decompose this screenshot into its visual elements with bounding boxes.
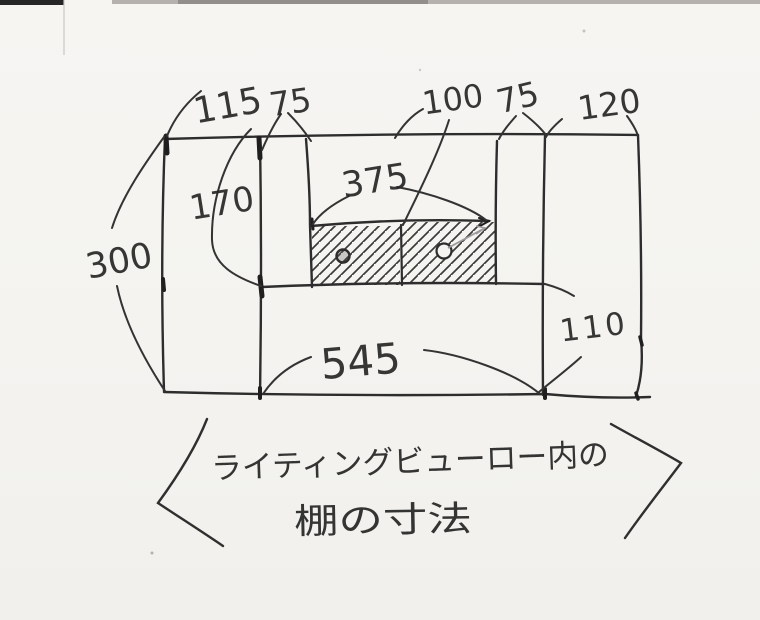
leader-110-upper [545, 284, 574, 296]
tick [163, 279, 164, 290]
left-drawer-hatch [312, 226, 400, 285]
leader-300-lower [117, 286, 165, 391]
tick [636, 393, 638, 399]
dim-label-75-left: 75 [267, 80, 314, 124]
top-edge-line [165, 134, 638, 139]
scan-top-band-dark [178, 0, 428, 4]
dim-label-120: 120 [575, 81, 643, 128]
drawer-knob-icon [437, 244, 452, 259]
paper-speck [151, 552, 154, 555]
dim-label-115: 115 [190, 80, 265, 132]
dim-label-545: 545 [319, 333, 403, 389]
leader-300-upper [112, 137, 164, 228]
leader-545-right [424, 350, 540, 394]
leader-100-long [403, 120, 449, 225]
dim-label-170: 170 [187, 179, 257, 229]
caption-group: ライティングビューロー内の 棚の寸法 [158, 419, 681, 546]
dim-label-75-right: 75 [493, 73, 543, 121]
sketch-canvas: 115 75 100 75 120 300 170 375 545 110 ライ… [0, 0, 760, 620]
left-inner-vertical [260, 137, 261, 395]
paper-speck [583, 30, 586, 33]
scanned-paper-sketch: 115 75 100 75 120 300 170 375 545 110 ライ… [0, 0, 760, 620]
dim-label-110: 110 [558, 306, 630, 350]
right-angle-bracket-icon [611, 424, 681, 538]
left-edge-line [162, 137, 165, 391]
caption-line-2: 棚の寸法 [294, 499, 473, 542]
dim-label-300: 300 [83, 236, 156, 288]
caption-line-1: ライティングビューロー内の [210, 437, 609, 487]
right-inner-vertical [543, 136, 545, 395]
bottom-edge-line [164, 392, 650, 398]
shelf-left-vertical [306, 139, 312, 287]
tick [259, 138, 260, 158]
paper-speck [419, 69, 421, 71]
tick [166, 136, 167, 153]
dim-label-100: 100 [420, 76, 486, 122]
shelf-right-vertical [496, 141, 497, 284]
leader-545-left [263, 357, 311, 394]
dim-label-375: 375 [339, 156, 411, 206]
right-edge-line [636, 135, 642, 396]
drawer-knob-icon [337, 250, 350, 263]
leader-110-lower [539, 357, 581, 392]
drawer-divider [401, 225, 402, 285]
tick [640, 337, 642, 345]
scan-corner-strip [0, 0, 64, 5]
leader-75b-right [523, 113, 546, 135]
